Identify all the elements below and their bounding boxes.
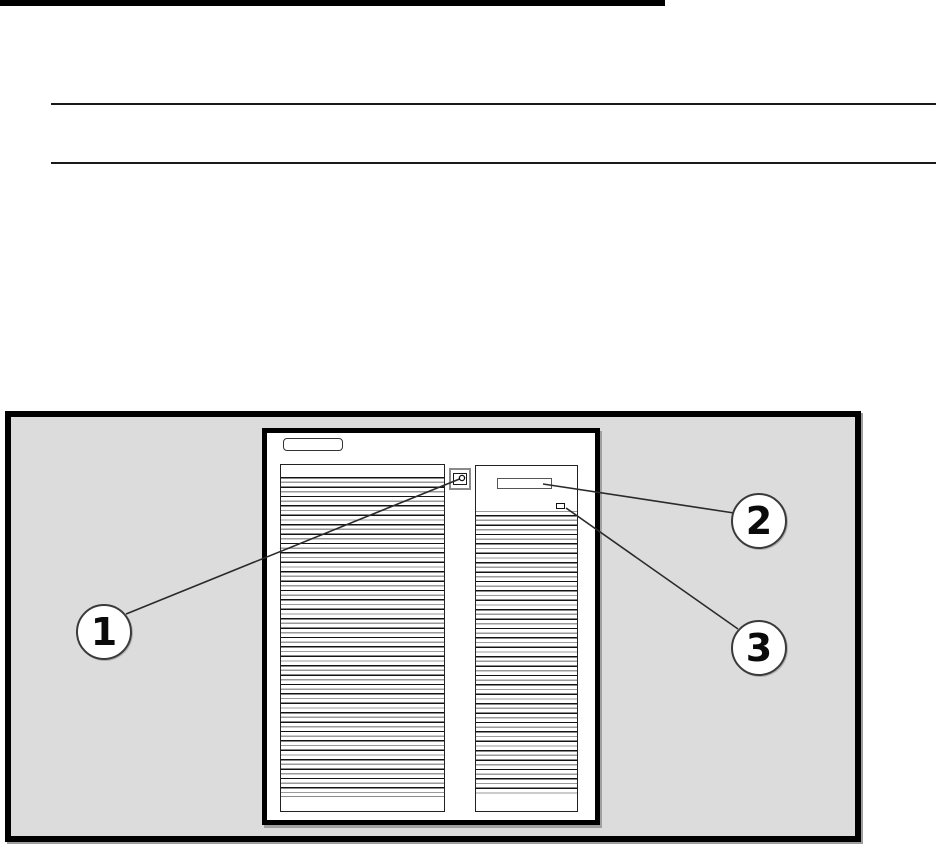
callout-number: 3 xyxy=(746,626,772,670)
callout-3: 3 xyxy=(731,620,787,676)
power-button-inner xyxy=(453,473,467,485)
bay-panel-divider xyxy=(476,511,577,512)
vent-stripes-right xyxy=(476,515,577,797)
left-vent-panel xyxy=(280,464,445,812)
section-rule-top xyxy=(51,103,936,105)
model-badge xyxy=(283,438,343,451)
figure-frame: 1 2 3 xyxy=(5,411,861,842)
callout-number: 2 xyxy=(746,499,772,543)
tower-front-view xyxy=(262,428,600,825)
callout-2: 2 xyxy=(731,493,787,549)
heading-underline xyxy=(0,0,665,6)
manual-page: 1 2 3 xyxy=(0,0,936,844)
right-bay-panel xyxy=(475,465,578,812)
status-indicator-square xyxy=(556,503,565,509)
media-bay-slot xyxy=(497,478,552,489)
callout-number: 1 xyxy=(91,610,117,654)
power-button-icon xyxy=(449,468,471,490)
section-rule-bottom xyxy=(51,162,936,164)
callout-1: 1 xyxy=(76,604,132,660)
vent-stripes-left xyxy=(281,477,444,797)
